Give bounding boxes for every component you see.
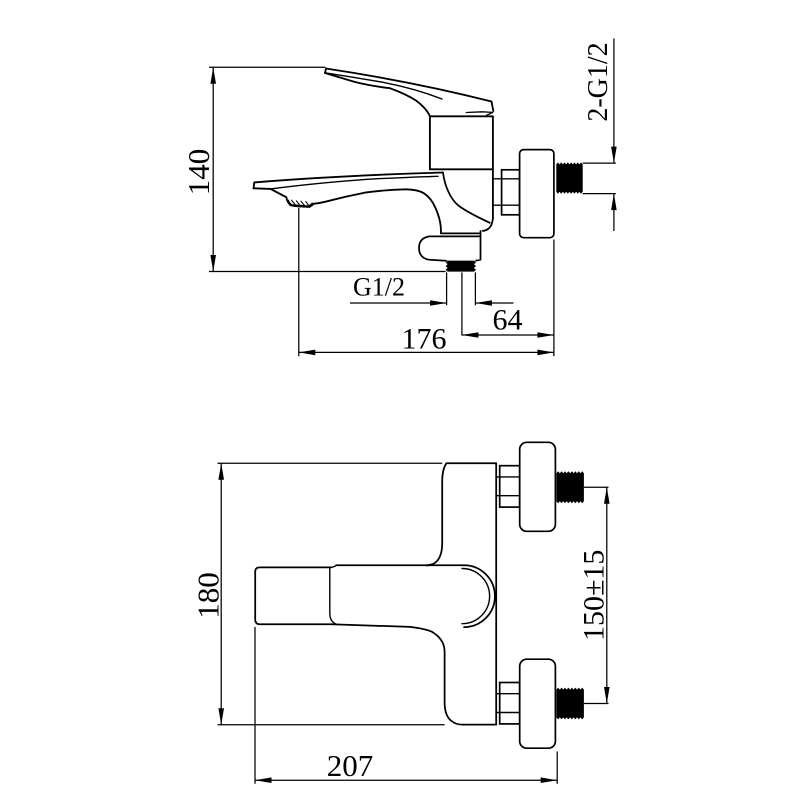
- svg-text:207: 207: [327, 748, 374, 783]
- svg-text:150±15: 150±15: [578, 550, 611, 641]
- svg-text:140: 140: [181, 149, 216, 196]
- svg-text:176: 176: [402, 323, 447, 356]
- svg-text:64: 64: [493, 304, 523, 337]
- svg-text:180: 180: [191, 572, 226, 619]
- svg-text:2-G1/2: 2-G1/2: [583, 42, 614, 121]
- svg-text:G1/2: G1/2: [353, 273, 405, 302]
